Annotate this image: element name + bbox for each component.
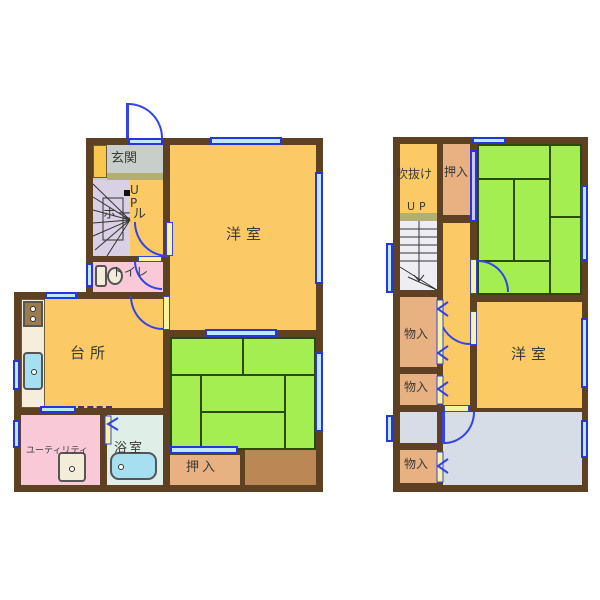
window-western-right xyxy=(315,172,323,284)
tatami-mat xyxy=(477,144,551,180)
door-opening-western-2f xyxy=(470,311,477,345)
label-closet-1f: 押入 xyxy=(186,461,218,475)
stove-burner xyxy=(30,306,36,312)
window-kitchen-top xyxy=(45,292,77,299)
genkan-step-strip xyxy=(107,173,163,180)
stairs-graphic-2f xyxy=(400,221,437,290)
tatami-mat xyxy=(284,374,316,450)
window-tatami-top-2f xyxy=(472,137,506,144)
sliding-door-closet-2f xyxy=(470,150,477,222)
label-toilet: トイレ xyxy=(112,266,148,279)
label-storage-3: 物入 xyxy=(404,458,428,471)
window-western-top xyxy=(210,137,282,145)
entrance-door-swing xyxy=(128,103,163,138)
window-kitchen-bottom xyxy=(40,406,76,413)
door-opening-kitchen xyxy=(163,296,170,330)
label-western-1f: 洋室 xyxy=(226,226,266,243)
label-storage-1: 物入 xyxy=(404,328,428,341)
label-genkan: 玄関 xyxy=(111,152,137,166)
tatami-mat xyxy=(242,337,316,376)
door-opening-tatami-2f xyxy=(470,259,477,294)
window-stairs-left-2f xyxy=(386,243,393,293)
folding-door-storage-3 xyxy=(434,452,450,482)
tatami-mat xyxy=(477,178,515,262)
window-tatami-right-2f xyxy=(581,185,588,261)
window-gray-left-2f xyxy=(386,415,393,442)
tatami-mat xyxy=(549,216,582,295)
room-closet-2f xyxy=(443,144,470,215)
window-gray-right-2f xyxy=(581,420,588,458)
door-opening-gray-2f xyxy=(444,405,469,412)
tatami-mat xyxy=(170,374,202,450)
toilet-tank xyxy=(95,265,107,287)
label-kitchen: 台所 xyxy=(70,345,110,362)
sliding-door-tatami-top xyxy=(205,329,277,337)
window-toilet-left xyxy=(86,263,93,287)
stove-burner xyxy=(30,316,36,322)
shoe-cabinet xyxy=(93,145,107,178)
entrance-window xyxy=(128,138,163,145)
label-western-2f: 洋室 xyxy=(511,346,551,363)
label-storage-2: 物入 xyxy=(404,381,428,394)
window-western-right-2f xyxy=(581,318,588,388)
tatami-mat xyxy=(549,144,582,218)
folding-door-storage-2 xyxy=(434,376,450,404)
kitchen-half-wall-dashed xyxy=(78,406,112,408)
utility-sink-drain xyxy=(69,466,75,472)
stair-top-strip-2f xyxy=(400,213,437,221)
label-bath: 浴室 xyxy=(114,442,144,456)
gray-room-left-strip xyxy=(400,412,437,443)
window-kitchen-left xyxy=(13,360,20,390)
sliding-door-closet-1f xyxy=(170,446,238,454)
label-void: 吹抜け xyxy=(396,168,432,181)
alcove-area-1f xyxy=(245,450,316,485)
label-hall-1f: ホール xyxy=(103,208,148,222)
folding-door-bath xyxy=(104,416,120,444)
bathtub-drain xyxy=(118,464,124,470)
folding-door-storage-1 xyxy=(434,300,450,364)
label-utility: ユーティリティ xyxy=(26,447,88,457)
kitchen-sink-drain xyxy=(31,369,37,375)
window-tatami-right xyxy=(315,352,323,432)
tatami-mat xyxy=(200,374,286,413)
label-closet-2f: 押入 xyxy=(444,166,468,179)
tatami-mat xyxy=(513,178,551,262)
tatami-mat xyxy=(200,411,286,450)
window-utility-left xyxy=(13,420,20,448)
floorplan-canvas: 玄関 UP ホール トイレ 洋室 台所 ユーティリティ 浴室 押入 xyxy=(0,0,600,600)
label-up-2f: UP xyxy=(407,201,430,213)
tatami-mat xyxy=(170,337,244,376)
stove xyxy=(23,301,43,327)
